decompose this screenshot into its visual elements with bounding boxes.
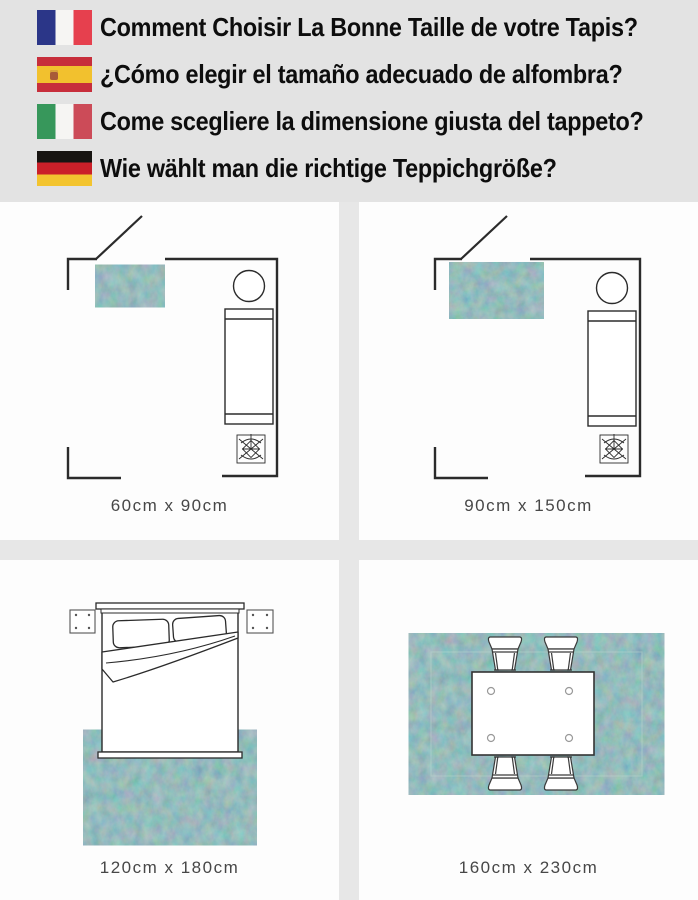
bed-footer-bar: [98, 752, 242, 758]
title-spanish: ¿Cómo elegir el tamaño adecuado de alfom…: [100, 59, 623, 90]
spain-flag-icon: [37, 57, 92, 92]
diagram-grid: 60cm x 90cm 90cm x 150cm: [0, 202, 698, 900]
panel-rug-160x230: 160cm x 230cm: [359, 560, 698, 900]
nightstand-left: [70, 610, 95, 633]
rug-size-label: 160cm x 230cm: [359, 858, 698, 878]
france-flag-icon: [37, 10, 92, 45]
title-italian: Come scegliere la dimensione giusta del …: [100, 106, 644, 137]
rug-size-infographic: Comment Choisir La Bonne Taille de votre…: [0, 0, 698, 900]
header-row-spanish: ¿Cómo elegir el tamaño adecuado de alfom…: [37, 51, 698, 98]
side-table: [234, 271, 265, 302]
sofa: [588, 311, 636, 426]
living-room-floor-plan-small: [0, 202, 339, 540]
rug-swatch-60x90: [97, 266, 163, 306]
door-swing-line: [96, 216, 142, 259]
sofa: [225, 309, 273, 424]
multilingual-header: Comment Choisir La Bonne Taille de votre…: [0, 0, 698, 202]
italy-flag-icon: [37, 104, 92, 139]
panel-rug-60x90: 60cm x 90cm: [0, 202, 339, 540]
side-table: [597, 273, 628, 304]
nightstand-right: [247, 610, 273, 633]
rug-size-label: 120cm x 180cm: [0, 858, 339, 878]
rug-size-label: 60cm x 90cm: [0, 496, 339, 516]
germany-flag-icon: [37, 151, 92, 186]
dining-table: [472, 672, 594, 755]
headboard: [96, 603, 244, 609]
header-row-french: Comment Choisir La Bonne Taille de votre…: [37, 4, 698, 51]
rug-swatch-90x150: [452, 264, 541, 317]
bed: [96, 603, 244, 758]
panel-rug-90x150: 90cm x 150cm: [359, 202, 698, 540]
title-german: Wie wählt man die richtige Teppichgröße?: [100, 153, 557, 184]
living-room-floor-plan-medium: [359, 202, 698, 540]
title-french: Comment Choisir La Bonne Taille de votre…: [100, 12, 638, 43]
panel-rug-120x180: 120cm x 180cm: [0, 560, 339, 900]
potted-plant: [600, 434, 628, 463]
header-row-german: Wie wählt man die richtige Teppichgröße?: [37, 145, 698, 192]
potted-plant: [237, 434, 265, 463]
rug-size-label: 90cm x 150cm: [359, 496, 698, 516]
bedroom-top-view: [0, 560, 339, 900]
door-swing-line: [461, 216, 507, 259]
dining-table-top-view: [359, 560, 698, 900]
header-row-italian: Come scegliere la dimensione giusta del …: [37, 98, 698, 145]
